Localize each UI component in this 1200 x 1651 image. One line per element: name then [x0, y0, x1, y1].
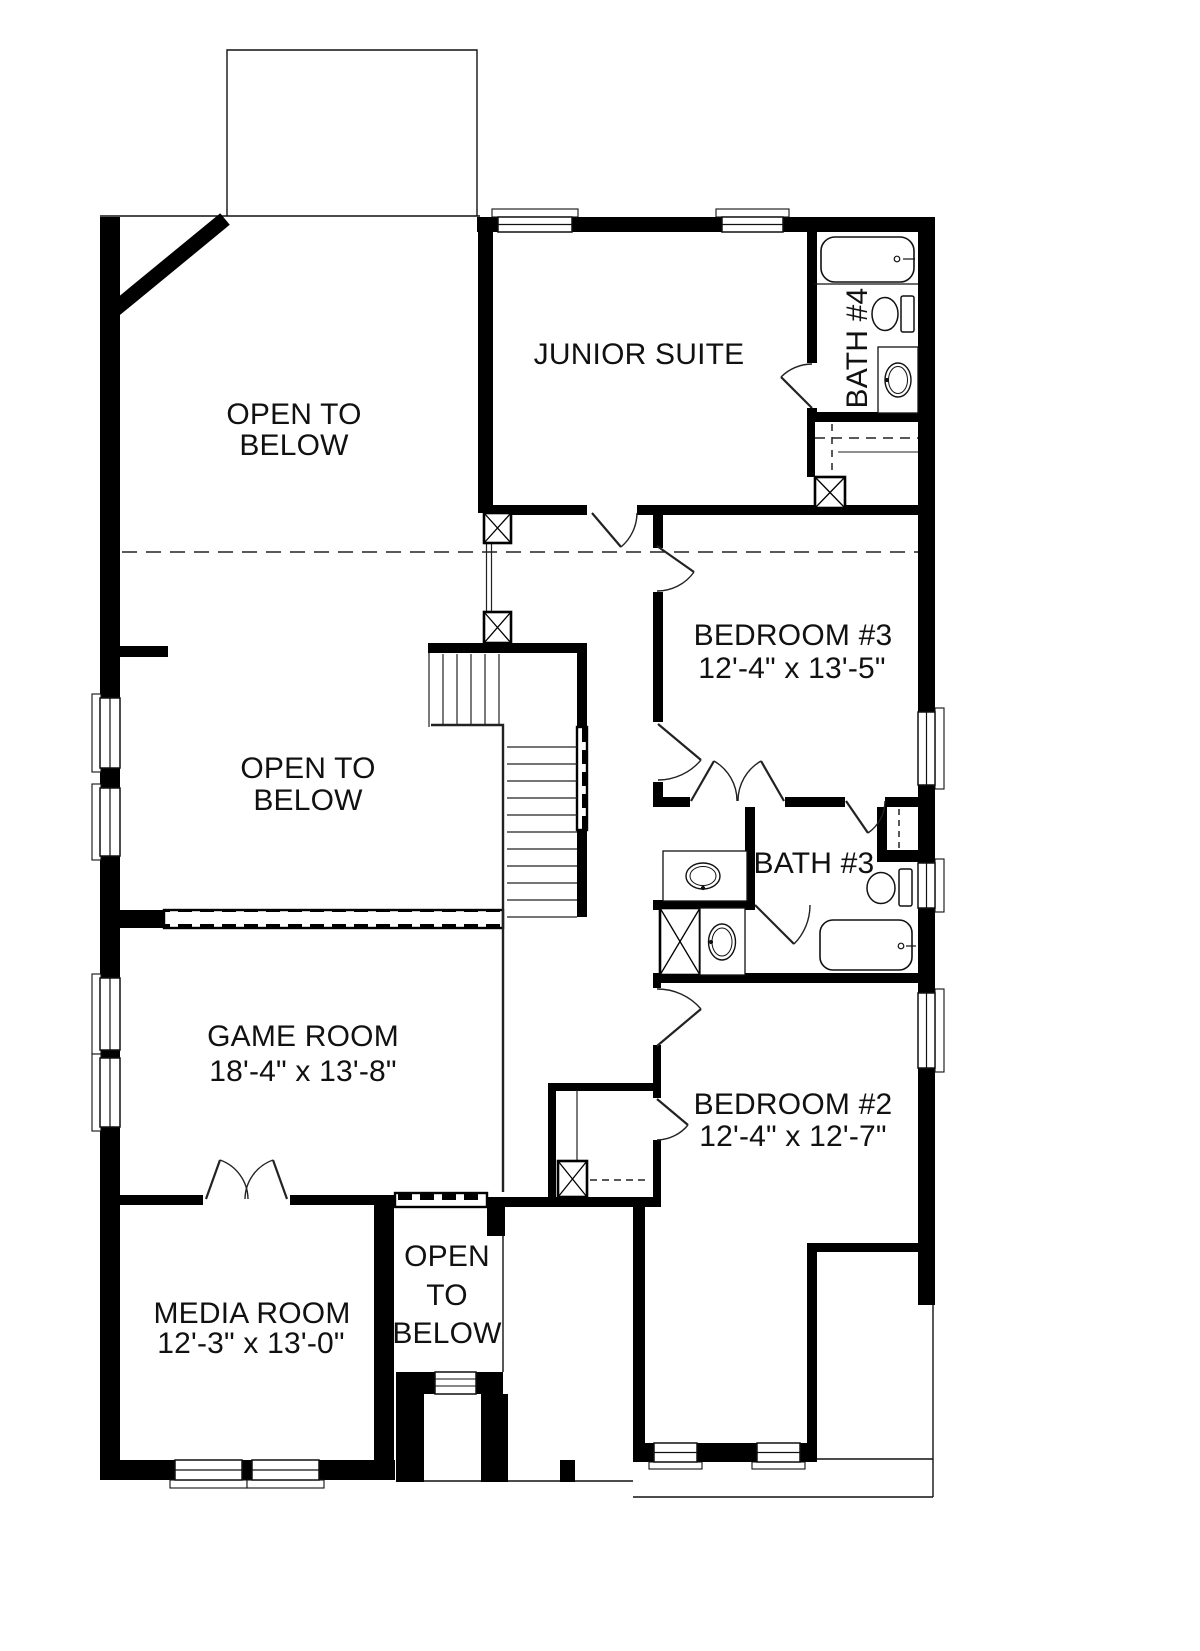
- room-label-bedroom-2: BEDROOM #2: [694, 1088, 893, 1122]
- room-label-open-to-below-upper-1: OPEN TO: [226, 398, 361, 432]
- window-icon: [170, 1460, 247, 1488]
- toilet-icon: [872, 296, 914, 332]
- room-label-open-to-below-upper-2: BELOW: [239, 429, 348, 463]
- door-tub-area: [755, 905, 810, 944]
- room-dims-game-room: 18'-4" x 13'-8": [209, 1055, 397, 1089]
- window-icon: [435, 1372, 476, 1394]
- bathtub-icon: [813, 237, 918, 284]
- door-bath-4: [781, 364, 812, 408]
- room-label-open-to-below-middle-2: BELOW: [253, 784, 362, 818]
- window-icon: [918, 708, 944, 789]
- room-label-open-to-below-lower-3: BELOW: [392, 1317, 501, 1351]
- chase-icon: [484, 612, 511, 643]
- window-icon: [918, 859, 944, 912]
- door-junior-suite: [592, 513, 637, 547]
- window-icon: [92, 974, 120, 1054]
- sink-icon: [663, 851, 747, 901]
- double-door-bath-3: [691, 761, 784, 801]
- room-label-junior-suite: JUNIOR SUITE: [534, 338, 745, 372]
- room-label-bath-3: BATH #3: [754, 847, 875, 881]
- sink-icon: [700, 908, 745, 975]
- sink-icon: [878, 347, 918, 413]
- window-icon: [92, 1054, 120, 1131]
- room-dims-media-room: 12'-3" x 13'-0": [157, 1327, 345, 1361]
- shower-icon: [660, 908, 700, 975]
- chase-icon: [815, 477, 845, 508]
- door-bedroom-2: [657, 989, 701, 1046]
- window-icon: [247, 1460, 324, 1488]
- window-icon: [92, 694, 120, 772]
- window-icon: [492, 209, 578, 232]
- room-label-bath-4: BATH #4: [841, 288, 875, 409]
- room-label-open-to-below-middle-1: OPEN TO: [240, 752, 375, 786]
- room-label-game-room: GAME ROOM: [207, 1020, 399, 1054]
- floor-plan: OPEN TO BELOW JUNIOR SUITE BATH #4 BEDRO…: [0, 0, 1200, 1651]
- door-closet-bedroom-2: [657, 1099, 688, 1140]
- room-dims-bedroom-2: 12'-4" x 12'-7": [699, 1120, 887, 1154]
- room-dims-bedroom-3: 12'-4" x 13'-5": [698, 652, 886, 686]
- chase-icon: [484, 513, 511, 543]
- window-icon: [649, 1443, 702, 1469]
- floor-plan-drawing: [0, 0, 1200, 1651]
- bathtub-icon: [820, 920, 916, 970]
- room-label-open-to-below-lower-2: TO: [426, 1279, 468, 1313]
- room-label-bedroom-3: BEDROOM #3: [694, 619, 893, 653]
- railing: [164, 727, 587, 1207]
- window-icon: [752, 1443, 805, 1469]
- double-door-media-room: [206, 1160, 287, 1199]
- room-label-open-to-below-lower-1: OPEN: [404, 1240, 490, 1274]
- window-icon: [92, 784, 120, 860]
- window-icon: [918, 989, 944, 1072]
- room-label-media-room: MEDIA ROOM: [153, 1297, 350, 1331]
- door-hall: [658, 724, 701, 780]
- window-icon: [716, 209, 789, 232]
- chase-icon: [558, 1161, 587, 1197]
- door-bedroom-3: [657, 546, 694, 591]
